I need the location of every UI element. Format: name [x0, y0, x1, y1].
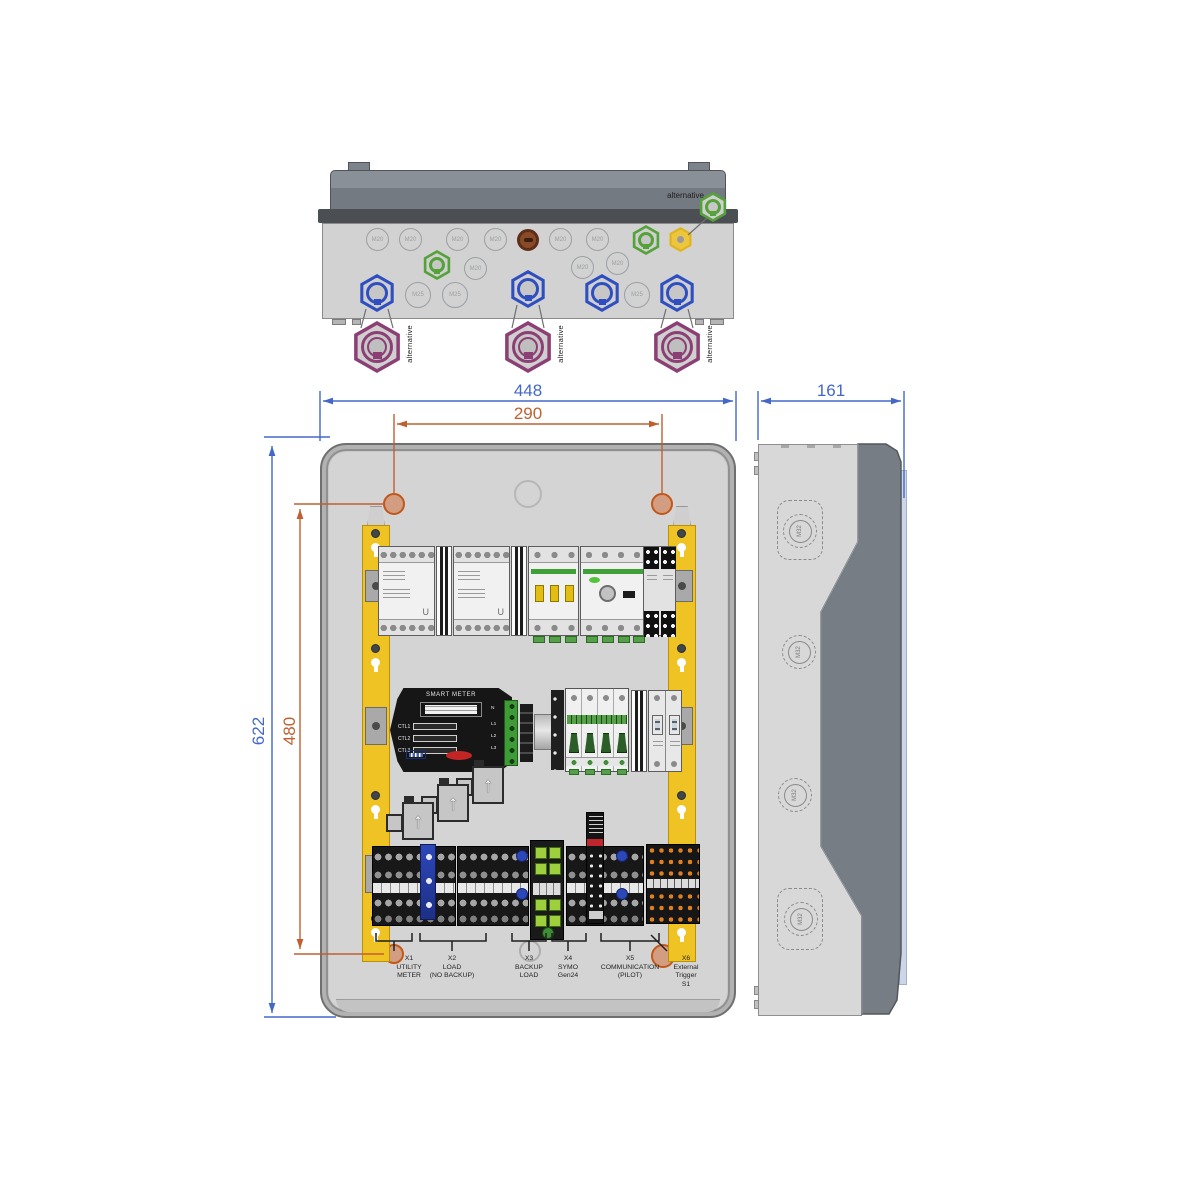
terminal-dots: [581, 619, 645, 635]
smart-meter: SMART METER CTL1 CTL2 CTL3 N L1 L2 L3: [390, 688, 512, 772]
contactor: U: [453, 546, 510, 636]
terminal-dots: [379, 547, 434, 563]
alternative-label: alternative: [405, 325, 414, 363]
cable-gland-blue: [358, 274, 396, 312]
technical-drawing-enclosure: alternative M20 M20 M20 M20 M20 M20 M20 …: [0, 0, 1200, 1200]
fuse-lever: [601, 733, 611, 753]
terminal-dots: [379, 619, 434, 635]
knockout-m32: M32: [784, 902, 818, 936]
keyhole-slot: [677, 805, 686, 814]
meter-terminal-label: L3: [491, 746, 496, 751]
meter-terminal-label: N: [491, 706, 494, 711]
keyhole-slot: [677, 928, 686, 937]
label-fineprint: [653, 741, 663, 749]
spd-window: [669, 715, 680, 735]
label-fineprint: [383, 589, 410, 599]
relay-terminals: [661, 547, 676, 569]
spacer-module: [631, 690, 647, 772]
knockout-m20: M20: [484, 228, 507, 251]
smart-meter-rating-label: [420, 702, 482, 717]
fuse-lever: [569, 733, 579, 753]
spd-window: [652, 715, 663, 735]
status-led: [589, 577, 600, 583]
mounting-hole-top-left: [383, 493, 405, 515]
terminal-group-label-x2: X2 LOAD (NO BACKUP): [414, 955, 490, 981]
contactor: U: [378, 546, 435, 636]
terminal-dot: [671, 761, 677, 767]
spacer-module: [436, 546, 452, 636]
ctl-channel: CTL1: [398, 722, 457, 731]
relay-label: [589, 911, 603, 919]
fuse-disconnector-4pole: [565, 688, 629, 772]
terminal-dot: [671, 695, 677, 701]
knockout-m25: M25: [442, 282, 468, 308]
terminal-clip: [601, 769, 611, 775]
knockout-m20: M20: [549, 228, 572, 251]
side-lid-profile: [740, 430, 920, 1030]
terminal-clip: [585, 769, 595, 775]
dimension-label-hole-spacing-w: 290: [514, 404, 542, 423]
knockout-m25: M25: [405, 282, 431, 308]
knockout-m20: M20: [606, 252, 629, 275]
breaker-stripe: [583, 569, 643, 574]
arrow-up-icon: ↑: [448, 793, 459, 814]
knockout-m32: M32: [782, 635, 816, 669]
bracket-screw: [677, 791, 686, 800]
neutral-terminal: [420, 844, 436, 920]
surge-protection-device: [648, 690, 682, 772]
label-fineprint: [458, 589, 485, 599]
cable-gland-blue: [583, 274, 621, 312]
enclosure-front-bottom-edge: [336, 999, 720, 1012]
ctl-channel: CTL2: [398, 734, 457, 743]
blue-terminal-dot: [616, 850, 628, 862]
ct-cable-stub: [386, 814, 403, 832]
arrow-up-icon: ↑: [483, 775, 494, 796]
meter-red-label: [446, 751, 472, 760]
cable-gland-purple-alternative: [651, 321, 703, 373]
keyhole-slot: [371, 658, 380, 667]
earth-terminal: [535, 915, 547, 927]
pilot-relay: [586, 812, 604, 924]
earth-terminal: [535, 863, 547, 875]
contactor-mark: U: [498, 607, 505, 617]
contactor-mark: U: [423, 607, 430, 617]
terminal-block-x1: [372, 846, 456, 926]
rcd-knob: [599, 585, 616, 602]
label-fineprint: [383, 571, 405, 583]
terminal-dots: [529, 547, 578, 563]
sealing-plug: [517, 229, 539, 251]
bracket-screw: [677, 644, 686, 653]
earth-terminal: [549, 847, 561, 859]
bracket-screw: [371, 644, 380, 653]
earth-terminal: [535, 847, 547, 859]
terminal-dots: [566, 692, 628, 704]
terminal-clip: [586, 636, 598, 643]
meter-terminal-label: L2: [491, 734, 496, 739]
enclosure-foot: [332, 319, 346, 325]
knockout-m32: M32: [778, 778, 812, 812]
label-fineprint: [670, 741, 680, 749]
alternative-label: alternative: [705, 325, 714, 363]
label-fineprint: [589, 816, 603, 836]
keyhole-slot: [371, 805, 380, 814]
knockout-m25: M25: [624, 282, 650, 308]
terminal-clip: [633, 636, 645, 643]
terminal-block-x3-x4: [566, 846, 644, 926]
blue-terminal-dot: [516, 888, 528, 900]
dip-switch: [406, 750, 426, 759]
terminal-dots: [454, 547, 509, 563]
knockout-m20: M20: [464, 257, 487, 280]
dimension-label-front-width: 448: [514, 381, 542, 400]
bracket-screw: [371, 791, 380, 800]
terminal-clip: [533, 636, 545, 643]
earth-terminal: [549, 915, 561, 927]
knockout-m20: M20: [446, 228, 469, 251]
knockout-m32: M32: [783, 514, 817, 548]
current-transformer: ↑: [437, 784, 469, 822]
knockout-m20: M20: [586, 228, 609, 251]
mounting-hole-top-right: [651, 493, 673, 515]
terminal-dots: [529, 619, 578, 635]
busbar-endcap: [551, 690, 564, 770]
cable-gland-purple-alternative: [351, 321, 403, 373]
dimension-label-hole-spacing-h: 480: [280, 717, 299, 745]
cable-gland-green: [422, 250, 452, 280]
terminal-dots: [566, 757, 628, 766]
spacer-module: [511, 546, 527, 636]
relay-terminals: [661, 611, 676, 637]
front-panel-knockout: [514, 480, 542, 508]
terminal-clip: [569, 769, 579, 775]
meter-terminal-label: L1: [491, 722, 496, 727]
keyhole-slot: [677, 658, 686, 667]
cable-gland-blue: [509, 270, 547, 308]
relay-pair: [643, 546, 676, 636]
circuit-breaker-3pole: [528, 546, 579, 636]
wire-connector-stack: [520, 704, 533, 762]
label-fineprint: [458, 571, 480, 583]
current-transformer: ↑: [402, 802, 434, 840]
terminal-group-label-x6: X6 External Trigger S1: [648, 955, 724, 989]
terminal-clip: [617, 769, 627, 775]
current-transformer: ↑: [472, 766, 504, 804]
keyhole-slot: [371, 928, 380, 937]
relay-red-stripe: [587, 839, 603, 846]
relay-terminals: [644, 611, 659, 637]
terminal-dots: [581, 547, 645, 563]
label-fineprint: [663, 575, 673, 583]
terminal-clip: [565, 636, 577, 643]
smart-meter-title: SMART METER: [390, 692, 512, 698]
earth-terminal: [549, 899, 561, 911]
enclosure-lid-top: [330, 170, 726, 210]
label-strip: [533, 883, 561, 895]
blue-terminal-dot: [616, 888, 628, 900]
rcd-breaker: [580, 546, 646, 636]
bracket-screw: [677, 529, 686, 538]
alternative-label: alternative: [556, 325, 565, 363]
terminal-clip: [618, 636, 630, 643]
terminal-clip: [549, 636, 561, 643]
knockout-m20: M20: [399, 228, 422, 251]
breaker-lever: [535, 585, 544, 602]
meter-terminal-block: [504, 700, 518, 766]
relay-terminals: [587, 851, 603, 909]
earth-terminal-block: [530, 840, 564, 940]
relay-terminals: [644, 547, 659, 569]
earth-screw: [542, 927, 554, 939]
fuse-lever: [617, 733, 627, 753]
cable-gland-blue: [658, 274, 696, 312]
enclosure-lid-edge: [318, 209, 738, 223]
breaker-lever: [550, 585, 559, 602]
breaker-stripe: [531, 569, 576, 574]
cable-gland-green: [631, 225, 661, 255]
din-rail-end: [365, 707, 387, 745]
breaker-lever: [565, 585, 574, 602]
terminal-dot: [654, 695, 660, 701]
terminal-dots: [454, 619, 509, 635]
label-fineprint: [647, 575, 657, 583]
test-button: [623, 591, 635, 598]
dimension-448: [320, 391, 736, 441]
terminal-dot: [654, 761, 660, 767]
earth-terminal: [535, 899, 547, 911]
terminal-clip: [602, 636, 614, 643]
arrow-up-icon: ↑: [413, 811, 424, 832]
blue-terminal-dot: [516, 850, 528, 862]
bracket-screw: [371, 529, 380, 538]
communication-terminal-block: [646, 844, 700, 924]
cable-gland-green-alternative: [698, 192, 728, 222]
fuse-label-band: [567, 715, 627, 724]
cable-gland-purple-alternative: [502, 321, 554, 373]
alternative-label-top: alternative: [598, 191, 704, 200]
dimension-label-side-depth: 161: [817, 381, 845, 400]
dimension-label-front-height: 622: [249, 717, 268, 745]
cable-gland-yellow: [668, 227, 693, 252]
keyhole-slot: [677, 543, 686, 552]
fuse-lever: [585, 733, 595, 753]
earth-terminal: [549, 863, 561, 875]
knockout-m20: M20: [366, 228, 389, 251]
